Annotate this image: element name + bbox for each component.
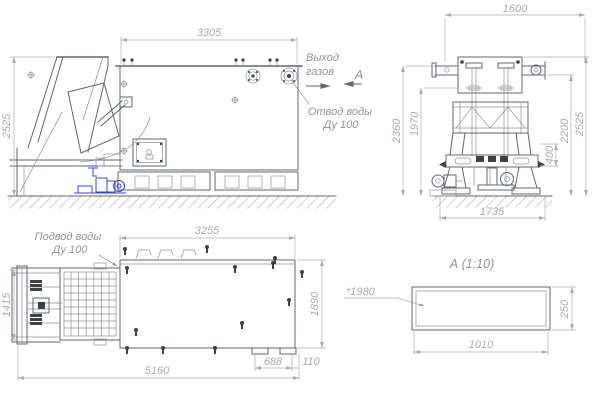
dim-front-height-right-outer-text: 2525 bbox=[574, 111, 586, 137]
plan-bolts bbox=[123, 245, 304, 354]
water-drain-leader bbox=[291, 80, 309, 104]
dim-front-height-right-inner-text: 2200 bbox=[559, 118, 571, 144]
front-truss bbox=[453, 102, 528, 133]
water-supply-label-1: Подвод воды bbox=[35, 231, 102, 243]
dim-front-width-top-text: 1600 bbox=[503, 3, 528, 15]
dim-front-height-left-outer-text: 2360 bbox=[391, 118, 403, 144]
gas-outlet-label-2: газов bbox=[306, 66, 334, 78]
dim-plan-foot-span-text: 688 bbox=[264, 356, 283, 368]
water-drain-label-2: Ду 100 bbox=[322, 119, 360, 131]
dim-front-base-text: 1735 bbox=[480, 206, 505, 218]
level-mark-text: *1980 bbox=[346, 286, 376, 298]
dim-plan-foot-offset: 110 bbox=[292, 353, 321, 381]
front-motor bbox=[430, 175, 462, 196]
dim-section-height-text: 250 bbox=[559, 299, 571, 319]
plan-body bbox=[120, 260, 295, 348]
dim-front-beam-text: 400 bbox=[544, 145, 556, 164]
plan-view: 3255 1415 1890 688 110 5160 bbox=[1, 225, 326, 381]
dim-front-beam: 400 bbox=[540, 144, 559, 166]
lifting-lug bbox=[158, 250, 173, 258]
section-duct-inner bbox=[416, 291, 546, 326]
dim-side-height-text: 2525 bbox=[1, 113, 13, 139]
section-view-letter: А bbox=[354, 68, 363, 82]
guide-posts bbox=[466, 63, 514, 156]
foot-pad bbox=[280, 348, 296, 354]
tank-body bbox=[28, 58, 303, 170]
inspection-door bbox=[133, 139, 166, 166]
section-a-view: А (1:10) *1980 1010 250 bbox=[344, 257, 576, 355]
dim-plan-width-left-text: 1415 bbox=[1, 292, 13, 317]
dim-section-width-text: 1010 bbox=[469, 339, 494, 351]
front-base bbox=[430, 133, 545, 196]
engineering-drawing-sheet: 2525 3305 Выход газов А Отвод воды Ду 10… bbox=[0, 0, 600, 400]
dim-front-height-left-inner: 1970 bbox=[409, 88, 457, 196]
skip-bucket bbox=[68, 83, 119, 153]
dim-plan-width-right-text: 1890 bbox=[309, 291, 321, 316]
gas-outlet-label-1: Выход bbox=[306, 52, 339, 64]
dim-side-length-text: 3305 bbox=[197, 27, 222, 39]
section-title: А (1:10) bbox=[449, 257, 494, 271]
base-frame-side bbox=[118, 172, 298, 190]
foot-pad bbox=[252, 348, 268, 354]
roof-bolts bbox=[122, 58, 278, 66]
plan-drive-unit bbox=[12, 266, 62, 344]
dim-plan-length-total: 5160 bbox=[18, 345, 299, 381]
gas-flange-icon bbox=[246, 69, 260, 83]
section-duct-outer bbox=[412, 287, 550, 330]
dim-side-length: 3305 bbox=[121, 27, 297, 64]
front-view: 1600 2360 1970 2200 2525 400 bbox=[391, 3, 589, 221]
ground-hatch-side bbox=[8, 197, 336, 209]
dim-plan-foot-offset-text: 110 bbox=[302, 356, 320, 368]
water-supply-leader bbox=[99, 255, 117, 266]
dim-plan-width-left: 1415 bbox=[1, 270, 16, 340]
dim-front-width-top: 1600 bbox=[445, 3, 585, 62]
dim-section-width: 1010 bbox=[414, 332, 548, 355]
side-arms bbox=[432, 62, 545, 79]
dim-front-height-left-inner-text: 1970 bbox=[409, 111, 421, 136]
water-drain-label-1: Отвод воды bbox=[308, 106, 372, 118]
lifting-lug bbox=[181, 250, 196, 258]
dim-section-height: 250 bbox=[552, 287, 576, 330]
lifting-lug bbox=[136, 250, 151, 258]
dim-plan-length-top: 3255 bbox=[120, 225, 295, 258]
dim-plan-foot-span: 688 bbox=[255, 353, 292, 371]
hopper-grating bbox=[60, 263, 120, 345]
drain-flange-icon bbox=[281, 68, 297, 84]
dim-side-height: 2525 bbox=[1, 57, 55, 196]
dim-plan-length-total-text: 5160 bbox=[145, 365, 170, 377]
water-supply-label-2: Ду 100 bbox=[51, 244, 89, 256]
side-view: 2525 3305 bbox=[1, 27, 336, 209]
dim-plan-length-top-text: 3255 bbox=[195, 225, 220, 237]
dim-front-height-right-inner: 2200 bbox=[547, 75, 574, 196]
